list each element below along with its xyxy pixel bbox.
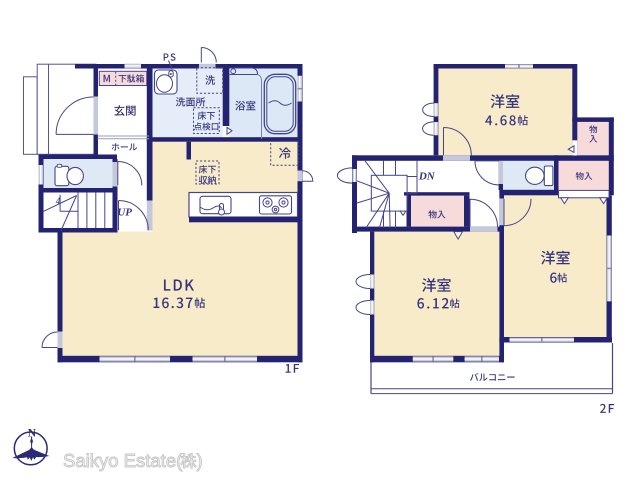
svg-text:4: 4 <box>56 196 61 206</box>
svg-text:): ) <box>197 450 203 471</box>
svg-text:UP: UP <box>117 206 132 218</box>
svg-text:N: N <box>28 427 37 439</box>
svg-text:Saikyo Estate(: Saikyo Estate( <box>63 450 183 471</box>
svg-text:DN: DN <box>418 171 436 183</box>
